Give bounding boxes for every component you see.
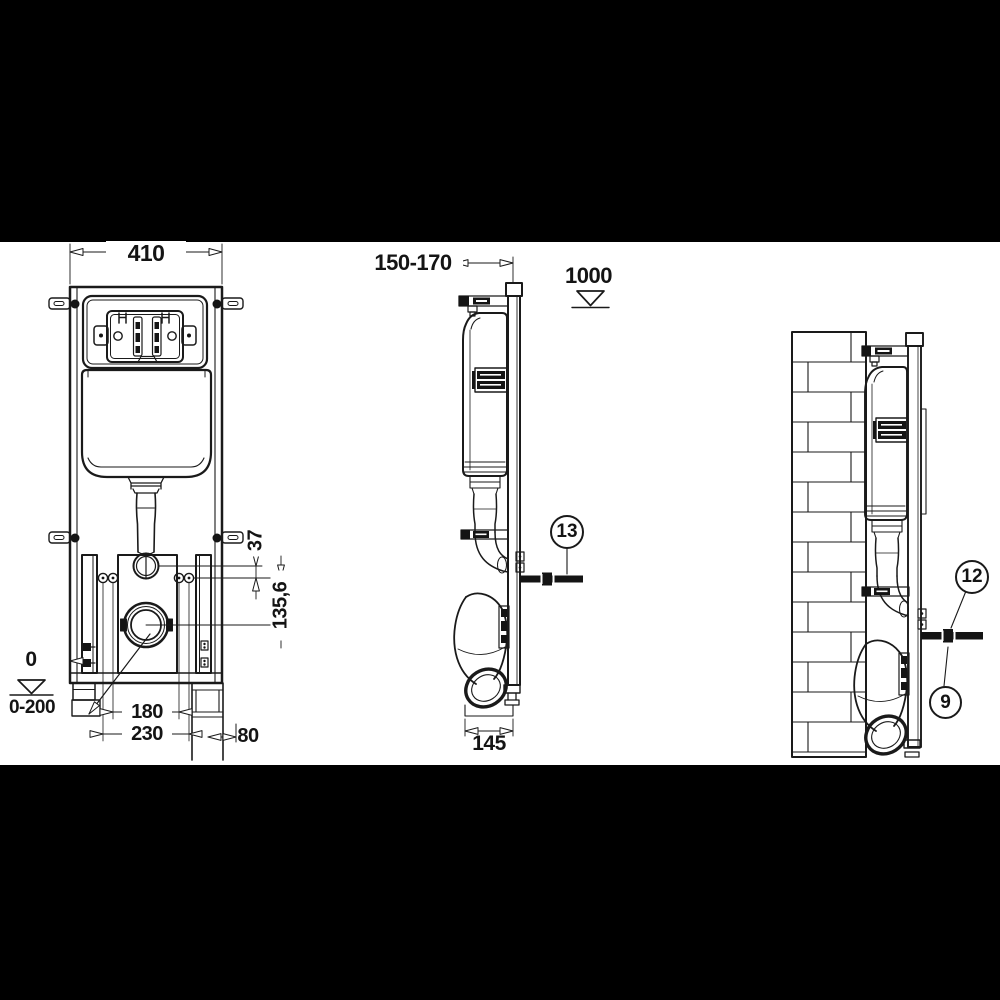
callout-12-leader bbox=[951, 591, 966, 628]
callout-13: 13 bbox=[550, 515, 584, 549]
dim-drain-offset: 135,6 bbox=[271, 571, 294, 641]
side-rail bbox=[508, 296, 520, 685]
front-floor-datum bbox=[10, 680, 53, 695]
installed-flush-valve bbox=[873, 418, 908, 442]
dim-flush-offset: 37 bbox=[246, 525, 267, 557]
installed-flush-pipe bbox=[872, 520, 909, 617]
side-supply-bracket bbox=[461, 530, 508, 539]
side-mounting-bolt bbox=[520, 573, 583, 586]
front-view-linework bbox=[10, 244, 287, 760]
dim-bolt-spacing: 180 bbox=[122, 702, 172, 723]
side-height-datum bbox=[572, 291, 609, 308]
installed-mounting-bolt bbox=[921, 629, 983, 643]
dim-side-depth-range: 150-170 bbox=[363, 251, 463, 274]
installed-supply-bracket bbox=[862, 587, 909, 596]
dim-actuator-height: 1000 bbox=[548, 264, 629, 287]
installed-actuator-rod bbox=[862, 346, 908, 366]
side-view-linework bbox=[454, 257, 609, 736]
drawing-linework bbox=[0, 0, 1000, 1000]
side-flush-valve bbox=[472, 368, 507, 392]
dim-side-offset: 80 bbox=[228, 726, 268, 747]
installed-rail-clip bbox=[918, 609, 926, 629]
dim-outer-spacing: 230 bbox=[122, 724, 172, 745]
front-cistern bbox=[82, 370, 211, 477]
side-rail-cap bbox=[506, 283, 522, 296]
drawing-canvas: 410 150-170 1000 37 135,6 0 0-200 180 23… bbox=[0, 0, 1000, 1000]
side-depth-dimension bbox=[455, 257, 513, 282]
front-flush-outlet bbox=[134, 553, 159, 579]
side-flush-pipe bbox=[470, 476, 508, 573]
side-cistern bbox=[463, 313, 507, 476]
side-foot bbox=[465, 685, 520, 716]
dim-floor-datum: 0 bbox=[11, 649, 51, 671]
callout-9-leader bbox=[944, 647, 948, 686]
installed-cistern bbox=[865, 367, 907, 520]
dim-front-width: 410 bbox=[106, 241, 186, 265]
front-access-panel bbox=[83, 296, 207, 368]
dim-base-depth: 145 bbox=[459, 733, 519, 755]
installed-rail-cap bbox=[906, 333, 923, 346]
front-anchor-tabs bbox=[49, 298, 243, 543]
dim-foot-adjust-range: 0-200 bbox=[4, 698, 60, 718]
callout-9: 9 bbox=[929, 686, 962, 719]
callout-12: 12 bbox=[955, 560, 989, 594]
installed-rail bbox=[908, 346, 921, 747]
side-drain-elbow bbox=[454, 593, 513, 714]
front-flush-pipe bbox=[128, 477, 164, 555]
